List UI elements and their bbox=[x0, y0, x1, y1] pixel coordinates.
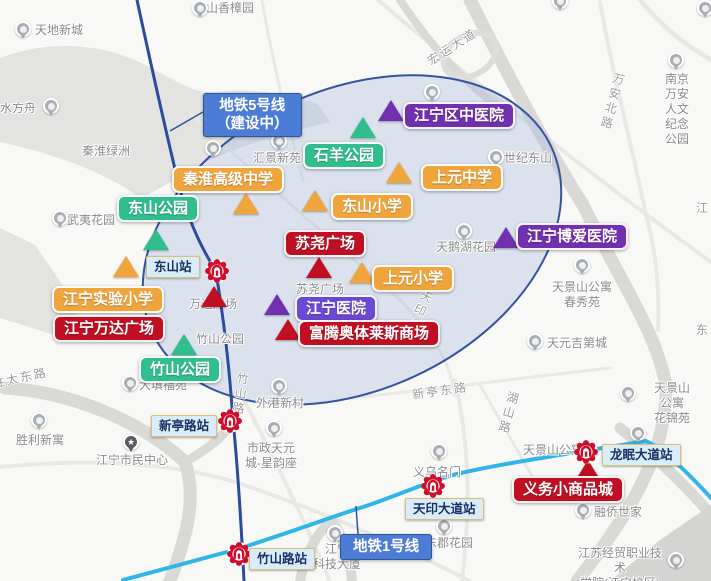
triangle-marker-red bbox=[201, 286, 227, 307]
map-screenshot: 天地新城东山香樟园山水方舟秦淮绿洲汇景新苑世纪东山南京万安人文 纪念公园武夷花园… bbox=[0, 0, 711, 581]
line5-label: 地铁5号线 （建设中） bbox=[203, 93, 302, 137]
triangle-marker-purple bbox=[264, 294, 290, 315]
triangle-marker-green bbox=[171, 334, 197, 355]
marker-box: 苏尧广场 bbox=[284, 230, 366, 257]
poi-pin-icon bbox=[122, 375, 138, 391]
station-label: 天印大道站 bbox=[405, 498, 484, 520]
triangle-marker-green bbox=[143, 229, 169, 250]
map-poi-label: 天景山公寓 春秀苑 bbox=[552, 280, 612, 310]
star-pin-icon bbox=[123, 434, 139, 450]
metro-logo-icon bbox=[217, 408, 243, 434]
marker-box: 富腾奥体莱斯商场 bbox=[298, 320, 440, 347]
road-name-label: 万安北路 bbox=[597, 71, 629, 133]
map-poi-label: 天景山公寓 花锦苑 bbox=[653, 381, 692, 426]
map-poi-label: 天元吉第城 bbox=[547, 336, 607, 351]
poi-pin-icon bbox=[456, 223, 472, 239]
metro-logo-icon bbox=[420, 473, 446, 499]
marker-box: 上元小学 bbox=[372, 265, 454, 292]
triangle-marker-orange bbox=[386, 162, 412, 183]
marker-box: 义务小商品城 bbox=[512, 476, 624, 503]
triangle-marker-purple bbox=[378, 100, 404, 121]
marker-box: 上元中学 bbox=[421, 164, 503, 191]
station-label: 竹山路站 bbox=[249, 548, 315, 570]
poi-pin-icon bbox=[43, 98, 59, 114]
map-poi-label: 东郡花园 bbox=[425, 536, 473, 551]
poi-pin-icon bbox=[527, 333, 543, 349]
marker-box: 江宁实验小学 bbox=[52, 286, 164, 313]
map-poi-label: 武夷花园 bbox=[67, 213, 115, 228]
poi-pin-icon bbox=[488, 149, 504, 165]
map-poi-label: 江宁市民中心 bbox=[96, 453, 168, 468]
triangle-marker-green bbox=[350, 117, 376, 138]
map-poi-label: 竹山公园 bbox=[196, 332, 244, 347]
map-poi-label: 南京万安人文 纪念公园 bbox=[660, 72, 694, 147]
poi-pin-icon bbox=[31, 412, 47, 428]
marker-box: 江宁区中医院 bbox=[403, 102, 515, 129]
road-name-label: 江 bbox=[696, 199, 710, 216]
poi-pin-icon bbox=[436, 518, 452, 534]
road-name-label: 胜太东路 bbox=[0, 363, 49, 391]
annotation-layer: 天地新城东山香樟园山水方舟秦淮绿洲汇景新苑世纪东山南京万安人文 纪念公园武夷花园… bbox=[0, 0, 711, 581]
road-name-label: 东 bbox=[696, 321, 710, 338]
map-poi-label: 融侨世家 bbox=[594, 505, 642, 520]
marker-box: 江宁博爱医院 bbox=[516, 223, 628, 250]
map-poi-label: 天地新城 bbox=[35, 23, 83, 38]
poi-pin-icon bbox=[575, 502, 591, 518]
triangle-marker-orange bbox=[233, 193, 259, 214]
marker-box: 东山小学 bbox=[331, 193, 413, 220]
poi-pin-icon bbox=[266, 420, 282, 436]
station-label: 新亭路站 bbox=[151, 415, 217, 437]
marker-box: 江宁万达广场 bbox=[53, 315, 165, 342]
poi-pin-icon bbox=[620, 385, 636, 401]
map-poi-label: 秦淮绿洲 bbox=[82, 144, 130, 159]
marker-box: 秦淮高级中学 bbox=[172, 166, 284, 193]
poi-pin-icon bbox=[630, 425, 646, 441]
poi-pin-icon bbox=[552, 0, 568, 9]
poi-pin-icon bbox=[424, 84, 440, 100]
road-name-label: 宏运大道 bbox=[424, 24, 480, 69]
triangle-marker-orange bbox=[302, 190, 328, 211]
road-name-label: 新亭东路 bbox=[411, 378, 469, 403]
poi-pin-icon bbox=[697, 0, 711, 16]
poi-pin-icon bbox=[574, 257, 590, 273]
poi-pin-icon bbox=[205, 140, 221, 156]
map-poi-label: 江苏经贸职业技术 学院(江宁校区) bbox=[575, 546, 666, 581]
poi-pin-icon bbox=[52, 210, 68, 226]
marker-box: 石羊公园 bbox=[303, 142, 385, 169]
triangle-marker-orange bbox=[113, 256, 139, 277]
station-label: 龙眠大道站 bbox=[602, 444, 681, 466]
poi-pin-icon bbox=[15, 21, 31, 37]
triangle-marker-red bbox=[306, 257, 332, 278]
metro-logo-icon bbox=[573, 439, 599, 465]
marker-box: 竹山公园 bbox=[139, 356, 221, 383]
station-label: 东山站 bbox=[146, 256, 200, 278]
map-poi-label: 山水方舟 bbox=[0, 101, 36, 116]
marker-box: 东山公园 bbox=[117, 195, 199, 222]
poi-pin-icon bbox=[668, 552, 684, 568]
map-poi-label: 市政天元 城-星韵座 bbox=[245, 441, 297, 471]
poi-pin-icon bbox=[431, 443, 447, 459]
map-poi-label: 世纪东山 bbox=[504, 151, 552, 166]
line1-label: 地铁1号线 bbox=[340, 534, 432, 560]
road-name-label: 湖山路 bbox=[494, 390, 522, 438]
marker-box: 江宁医院 bbox=[295, 295, 377, 322]
metro-logo-icon bbox=[204, 258, 230, 284]
poi-pin-icon bbox=[192, 0, 208, 16]
poi-pin-icon bbox=[668, 52, 684, 68]
poi-pin-icon bbox=[271, 378, 287, 394]
map-poi-label: 胜利新寓 bbox=[16, 433, 64, 448]
